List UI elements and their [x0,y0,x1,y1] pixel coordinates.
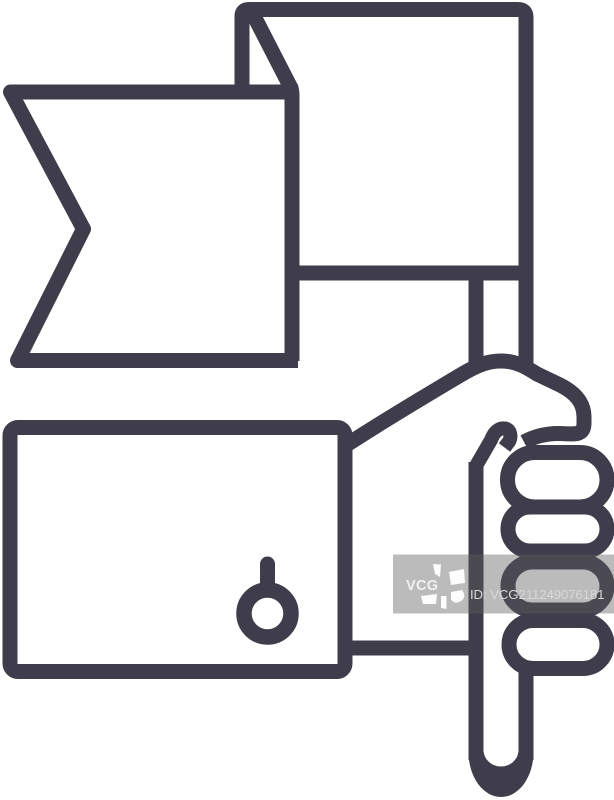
svg-text:ID: VCG211249076181: ID: VCG211249076181 [470,587,604,602]
svg-text:VCG: VCG [406,578,438,594]
